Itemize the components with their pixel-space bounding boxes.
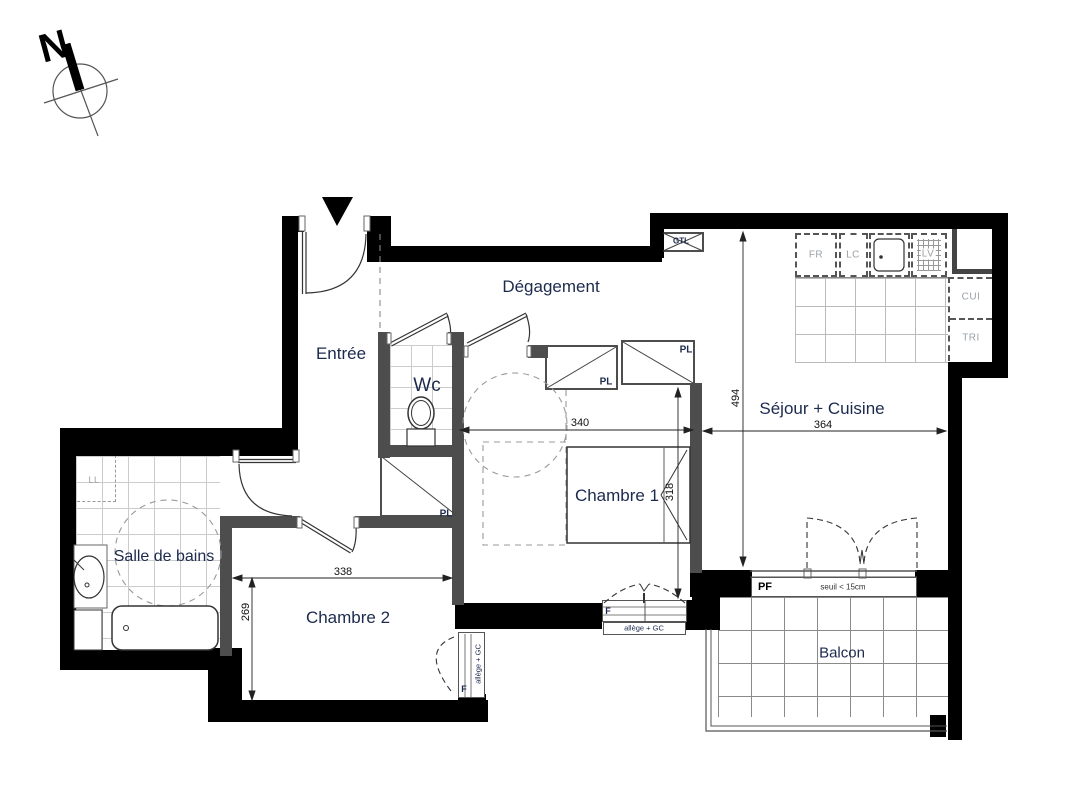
entree-door	[303, 232, 367, 294]
french-window-label: PF	[758, 581, 772, 593]
fridge-label: FR	[809, 250, 823, 261]
dim-chambre2-width: 338	[334, 566, 352, 578]
gtl-label: GTL	[673, 237, 689, 246]
floor-plan: N Entrée Dégagement Wc Chambre 1 Chambre…	[0, 0, 1074, 800]
chambre1-door	[467, 313, 530, 346]
plan-linework	[0, 0, 1074, 800]
closet-label-b: PL	[680, 345, 693, 356]
dim-chambre1-width: 340	[571, 417, 589, 429]
dim-chambre2-depth: 269	[240, 603, 252, 621]
kitchen-unit-label: CUI	[962, 292, 981, 303]
threshold-label: seuil < 15cm	[820, 583, 865, 592]
room-label-degagement: Dégagement	[502, 277, 599, 297]
room-label-balcon: Balcon	[819, 645, 865, 662]
washer-column-label: LC	[846, 250, 860, 261]
sdb-door	[238, 460, 296, 517]
room-label-sejour: Séjour + Cuisine	[759, 399, 884, 419]
entrance-marker-icon	[322, 197, 353, 226]
bathroom-sink	[74, 545, 107, 608]
dishwasher-label: LV	[921, 249, 936, 260]
room-label-sdb: Salle de bains	[114, 548, 215, 566]
chambre2-door	[301, 520, 357, 554]
window-label-chambre2: F	[461, 684, 467, 694]
room-label-chambre2: Chambre 2	[306, 608, 390, 628]
washing-machine-label: LL	[88, 475, 99, 485]
closet-label-c: PL	[440, 509, 453, 520]
sill-label-chambre2: allège + GC	[474, 644, 483, 684]
bin-label: TRI	[962, 333, 980, 344]
dim-sejour-width: 364	[814, 419, 832, 431]
window-label-chambre1: F	[605, 606, 611, 616]
room-label-chambre1: Chambre 1	[575, 486, 659, 506]
dim-chambre1-depth: 318	[664, 483, 676, 501]
toilet	[407, 397, 435, 446]
room-label-entree: Entrée	[316, 344, 366, 364]
sejour-french-window	[750, 518, 917, 577]
sill-label-chambre1: allège + GC	[624, 624, 664, 633]
closet-label-a: PL	[600, 377, 613, 388]
kitchen-sink	[874, 239, 904, 271]
room-label-wc: Wc	[413, 375, 440, 397]
dim-sejour-depth: 494	[730, 389, 742, 407]
wc-door	[390, 313, 451, 346]
door-frames	[233, 216, 866, 578]
bathtub	[74, 606, 218, 650]
chambre1-window-swing	[603, 584, 686, 621]
